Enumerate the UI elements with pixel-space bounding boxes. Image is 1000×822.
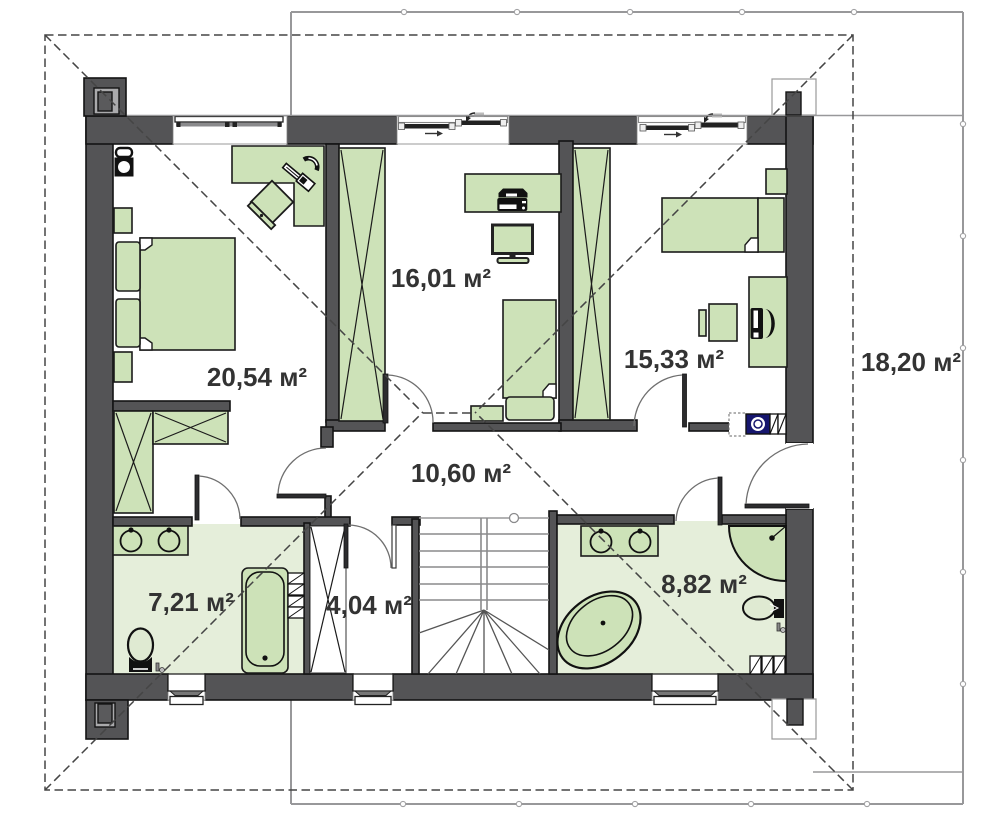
svg-text:15,33 м²: 15,33 м² xyxy=(624,344,725,374)
svg-text:7,21 м²: 7,21 м² xyxy=(148,587,234,617)
svg-text:20,54 м²: 20,54 м² xyxy=(207,362,308,392)
svg-text:18,20 м²: 18,20 м² xyxy=(861,347,962,377)
svg-text:16,01 м²: 16,01 м² xyxy=(391,263,492,293)
svg-text:10,60 м²: 10,60 м² xyxy=(411,458,512,488)
svg-text:8,82 м²: 8,82 м² xyxy=(661,569,747,599)
svg-text:4,04 м²: 4,04 м² xyxy=(326,590,412,620)
